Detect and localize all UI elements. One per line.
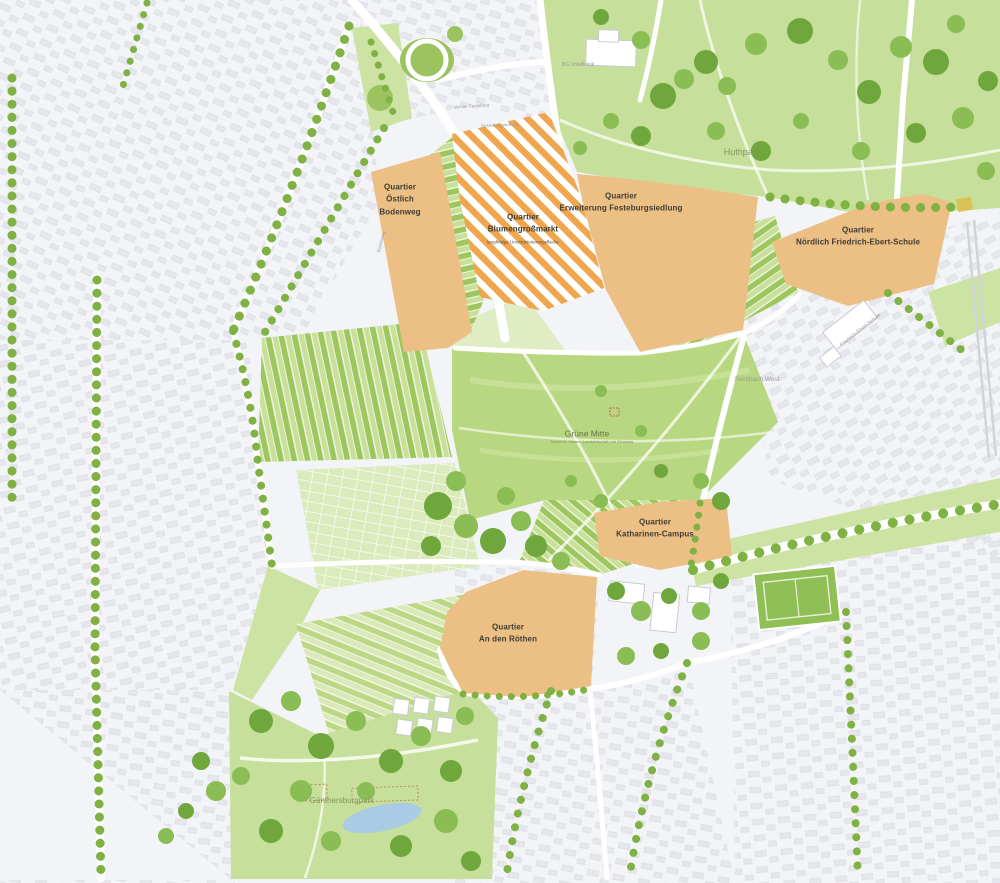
sports-field <box>753 566 840 630</box>
map-canvas: Quartier Östlich Bodenweg Quartier Blume… <box>0 0 1000 883</box>
yellow-parcel <box>956 197 973 212</box>
map-illustration <box>0 0 1000 883</box>
